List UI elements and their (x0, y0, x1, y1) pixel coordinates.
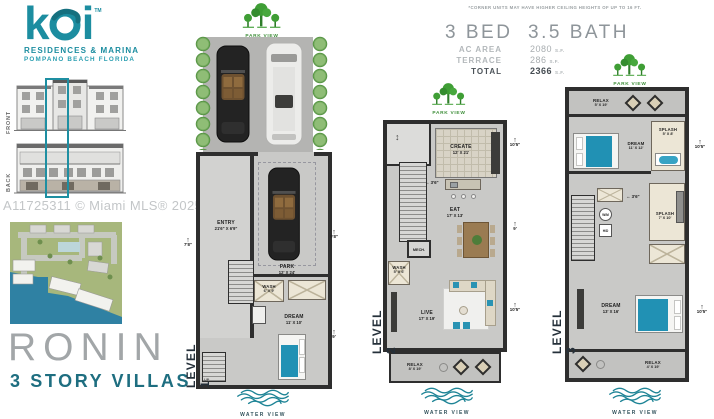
unit-highlight-outline (45, 78, 69, 198)
splash-mid-label: SPLASH 7' X 10' (651, 211, 679, 221)
aerial-site-map (10, 222, 122, 324)
dining-chair (490, 225, 495, 233)
room-dims: 6' X 9' (253, 289, 285, 294)
dryer: H/D (599, 224, 612, 237)
water-waves-icon (416, 387, 478, 405)
room-dims: 12' X 21' (439, 150, 483, 155)
washer-label: W/M (600, 213, 611, 217)
ceiling-disclaimer: *CORNER UNITS MAY HAVE HIGHER CEILING HE… (430, 5, 680, 10)
logo-letter-k: k (24, 6, 48, 41)
stairs (399, 162, 427, 242)
room-dims: 5' X 19' (587, 103, 615, 108)
bathtub-water (659, 156, 678, 164)
level3-label: LEVEL 3 (550, 300, 578, 354)
dimension-left-l1: ↑7'8" (181, 238, 195, 247)
dining-chair (457, 237, 462, 245)
bed-count: 3 BED (445, 22, 512, 44)
terrace-unit: S.F. (550, 59, 560, 64)
trademark: TM (94, 8, 101, 14)
stairs (571, 195, 595, 261)
total-label: TOTAL (440, 67, 502, 76)
eat-room-label: EAT 17' X 13' (437, 207, 473, 218)
park-view-label: PARK VIEW (425, 111, 473, 116)
counter-stool (471, 194, 476, 199)
entry-landing: ↕ (387, 124, 431, 166)
dimension-value: 9' (328, 335, 340, 339)
dimension-right-top-l1: ↑9'8" (327, 230, 341, 239)
walk-in-closet (649, 244, 685, 264)
bath-count: 3.5 BATH (528, 22, 629, 44)
level3-top-terrace: RELAX 5' X 19' (569, 91, 685, 117)
floorplan-sheet: k i TM RESIDENCES & MARINA POMPANO BEACH… (0, 0, 714, 419)
garage-door-opening (258, 152, 314, 156)
logo-koi: k i TM (24, 6, 154, 42)
bed-pillow (674, 300, 681, 314)
hedge-row-left (194, 36, 212, 150)
table-plant (472, 235, 482, 245)
dryer-label: H/D (600, 229, 611, 233)
water-view-label: WATER VIEW (228, 412, 298, 418)
kitchen-island (445, 179, 481, 190)
room-dims: 4' X 19' (637, 365, 669, 370)
counter-stool (451, 194, 456, 199)
live-room-label: LIVE 17' X 19' (409, 310, 445, 321)
level2-plan: ↕ CREATE 12' X 21' ↔ 3'6" EAT 17' X 13' … (383, 120, 507, 352)
room-dims: 17' X 19' (409, 316, 445, 321)
room-dims: 17' X 13' (437, 213, 473, 218)
water-view-badge-l3: WATER VIEW (600, 387, 670, 416)
ac-area-unit: S.F. (555, 48, 565, 53)
room-dims: 11' X 10' (270, 320, 318, 325)
closet (288, 280, 326, 300)
dream-top-label: DREAM 11' X 12' (621, 141, 651, 151)
mech-closet: MECH. (407, 240, 431, 258)
terrace-chair (475, 359, 492, 376)
park-view-badge-l2: PARK VIEW (425, 82, 473, 116)
room-dims: 13' X 16' (593, 309, 629, 314)
back-elevation-drawing (14, 138, 126, 198)
dimension-value: 9'8" (327, 235, 341, 239)
water-waves-icon (604, 387, 666, 405)
dining-chair (490, 249, 495, 257)
dining-chair (457, 225, 462, 233)
water-view-badge-l2: WATER VIEW (412, 387, 482, 416)
dimension-right-bottom-l3: ↑10'5" (694, 305, 710, 314)
terrace-table (439, 363, 448, 372)
dimension-value: 7'8" (181, 243, 195, 247)
brand-line2: POMPANO BEACH FLORIDA (24, 56, 154, 63)
dimension-value: 10'5" (692, 145, 708, 149)
counter-stool (461, 194, 466, 199)
hedge-row-right (311, 36, 329, 150)
dimension-right-top-l2: ↑10'5" (507, 138, 523, 147)
balcony-table (596, 360, 605, 369)
parked-van-white (264, 41, 304, 147)
park-view-badge-l3: PARK VIEW (606, 53, 654, 87)
dream-room-label: DREAM 11' X 10' (270, 314, 318, 325)
vertical-dim-arrow: ↕ (395, 132, 400, 142)
balcony-chair (575, 356, 592, 373)
ac-area-label: AC AREA (440, 45, 502, 54)
room-dims: 7' X 10' (651, 216, 679, 221)
relax-top-label: RELAX 5' X 19' (587, 98, 615, 108)
wash-room-label: WASH 5' X 6' (387, 265, 411, 275)
level3-plan: RELAX 5' X 19' DREAM 11' X 12' SPLASH 5'… (565, 87, 689, 382)
total-unit: S.F. (555, 70, 565, 75)
mls-watermark: A11725311 © Miami MLS® 2025 (3, 198, 202, 213)
room-dims: 21'6" X 6'9" (201, 226, 251, 231)
park-view-badge-l1: PARK VIEW (238, 2, 286, 39)
dining-table (463, 222, 489, 258)
level3-balcony: RELAX 4' X 19' (569, 352, 685, 378)
dimension-closet: ↔ 3'6" (626, 194, 640, 199)
brand-logo: k i TM RESIDENCES & MARINA POMPANO BEACH… (24, 6, 154, 63)
park-trees-icon (428, 82, 470, 106)
total-number: 2366 (530, 66, 552, 76)
bed (278, 334, 306, 380)
room-dims: 5' X 6' (387, 270, 411, 275)
bath-vanity (676, 191, 684, 223)
level2-label: LEVEL 2 (370, 300, 398, 354)
bathtub (655, 153, 681, 166)
terrace-chair (453, 359, 470, 376)
dimension-value: 9' (509, 227, 521, 231)
relax-terrace-label: RELAX 8' X 19' (401, 362, 429, 372)
dimension-right-top-l3: ↑10'5" (692, 140, 708, 149)
powder-room (252, 306, 266, 324)
dimension-right-bottom-l2: ↑10'5" (507, 303, 523, 312)
water-waves-icon (232, 389, 294, 407)
room-dims: 5' X 8' (653, 132, 683, 137)
bed-duvet (586, 136, 612, 167)
brand-line1: RESIDENCES & MARINA (24, 46, 154, 55)
parked-car-dark (215, 44, 251, 144)
entry-room (200, 156, 254, 338)
interior-wall (254, 274, 328, 277)
dimension-value: 10'5" (507, 308, 523, 312)
level2-terrace: RELAX 8' X 19' (389, 352, 501, 383)
stairs-upper (228, 260, 254, 304)
dimension-right-bottom-l1: ↑9' (328, 330, 340, 339)
total-value: 2366 S.F. (530, 66, 565, 76)
ac-area-number: 2080 (530, 44, 552, 54)
ac-area-value: 2080 S.F. (530, 44, 565, 54)
bed-pillow (299, 357, 305, 373)
relax-bottom-label: RELAX 4' X 19' (637, 360, 669, 370)
kitchen-counter-wall (491, 132, 500, 174)
bed-pillow (674, 316, 681, 330)
park-trees-icon (609, 53, 651, 77)
park-trees-icon (238, 2, 286, 29)
bed-duvet (281, 345, 298, 377)
bed (573, 133, 619, 169)
water-view-label: WATER VIEW (412, 410, 482, 416)
terrace-chair (647, 95, 664, 112)
sofa-pillow (453, 282, 459, 288)
plan-subtitle: 3 STORY VILLAS (10, 371, 191, 392)
coffee-table (459, 306, 468, 315)
dimension-value: 10'5" (694, 310, 710, 314)
create-room-label: CREATE 12' X 21' (439, 144, 483, 155)
level1-label: LEVEL 1 (184, 332, 212, 388)
bed-pillow (299, 339, 305, 355)
terrace-label: TERRACE (440, 56, 502, 65)
bed-pillow (576, 137, 583, 150)
sofa-pillow (471, 282, 477, 288)
linen-closet (597, 188, 623, 202)
terrace-chair (625, 95, 642, 112)
terrace-number: 286 (530, 55, 547, 65)
dining-chair (457, 249, 462, 257)
mech-label: MECH. (409, 248, 429, 252)
dimension-right-mid-l2: ↑9' (509, 222, 521, 231)
entry-room-label: ENTRY 21'6" X 6'9" (201, 220, 251, 231)
garage-car-dark (264, 166, 304, 262)
sofa-pillow (487, 300, 493, 306)
plan-title: RONIN (8, 326, 169, 370)
accent-chair (453, 322, 460, 329)
splash-top-label: SPLASH 5' X 8' (653, 127, 683, 137)
dimension-value: 10'5" (507, 143, 523, 147)
bed (635, 295, 683, 333)
dresser (577, 289, 584, 329)
water-view-badge-l1: WATER VIEW (228, 389, 298, 418)
dimension-value: 3'6" (431, 180, 439, 185)
washer: W/M (599, 208, 612, 221)
water-view-label: WATER VIEW (600, 410, 670, 416)
dimension-value: 3'6" (632, 194, 640, 199)
wash-room-label: WASH 6' X 9' (253, 284, 285, 294)
room-dims: 8' X 19' (401, 367, 429, 372)
bed-duvet (638, 299, 668, 331)
front-elevation-label: FRONT (6, 94, 12, 134)
back-elevation-label: BACK (6, 156, 12, 192)
dream-main-label: DREAM 13' X 16' (593, 303, 629, 314)
koi-fish-swirl-icon (48, 6, 82, 42)
level1-plan: ENTRY 21'6" X 6'9" PARK 12' X 24' WASH 6… (196, 152, 332, 389)
terrace-value: 286 S.F. (530, 55, 559, 65)
room-dims: 11' X 12' (621, 146, 651, 151)
front-elevation-drawing (14, 76, 126, 134)
logo-letter-i: i (82, 6, 95, 41)
accent-chair (463, 322, 470, 329)
bed-pillow (576, 153, 583, 166)
island-sink (450, 182, 458, 188)
dining-chair (490, 237, 495, 245)
dimension-island: ↔ 3'6" (425, 180, 439, 185)
interior-wall (569, 171, 651, 174)
